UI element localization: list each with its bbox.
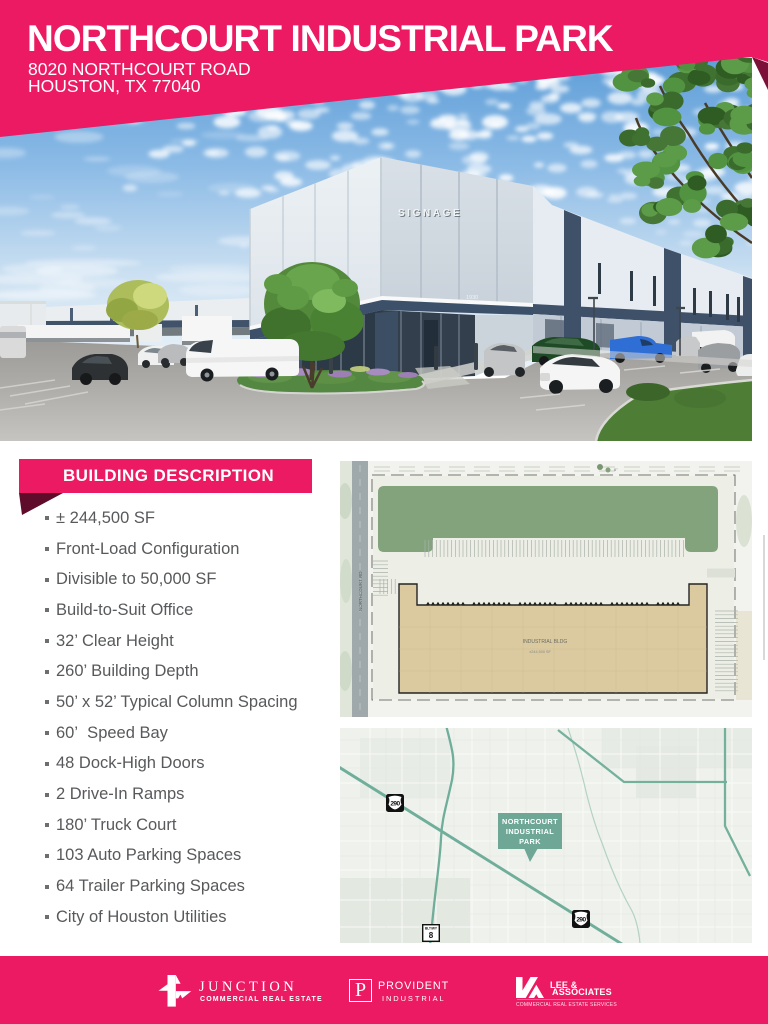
- svg-text:±244,500 SF: ±244,500 SF: [529, 650, 551, 654]
- svg-text:290: 290: [576, 917, 586, 924]
- svg-text:NORTHCOURT RD: NORTHCOURT RD: [358, 571, 363, 611]
- svg-text:6": 6": [614, 467, 618, 472]
- svg-text:8: 8: [429, 931, 434, 940]
- svg-text:INDUSTRIAL BLDG: INDUSTRIAL BLDG: [523, 639, 568, 645]
- svg-text:INDUSTRIAL: INDUSTRIAL: [506, 827, 554, 836]
- svg-text:PARK: PARK: [519, 837, 541, 846]
- svg-text:SIGNAGE: SIGNAGE: [398, 208, 462, 219]
- svg-text:NORTHCOURT: NORTHCOURT: [502, 817, 558, 826]
- svg-text:1930: 1930: [466, 295, 478, 301]
- svg-text:BLT/WY: BLT/WY: [425, 927, 438, 931]
- svg-text:290: 290: [390, 801, 400, 808]
